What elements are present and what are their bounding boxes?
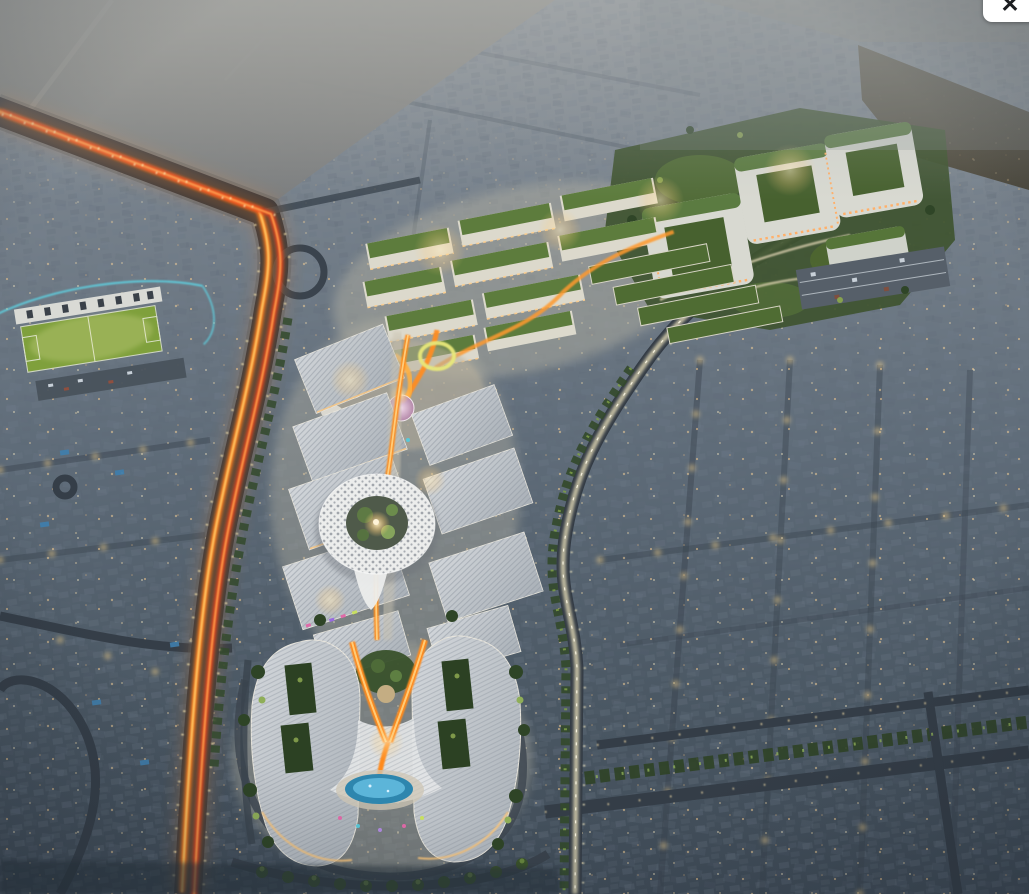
close-icon: ✕ bbox=[1000, 0, 1019, 16]
aerial-city-render bbox=[0, 0, 1029, 894]
image-viewer: ✕ bbox=[0, 0, 1029, 894]
vignette bbox=[0, 0, 1029, 894]
close-button[interactable]: ✕ bbox=[983, 0, 1029, 22]
